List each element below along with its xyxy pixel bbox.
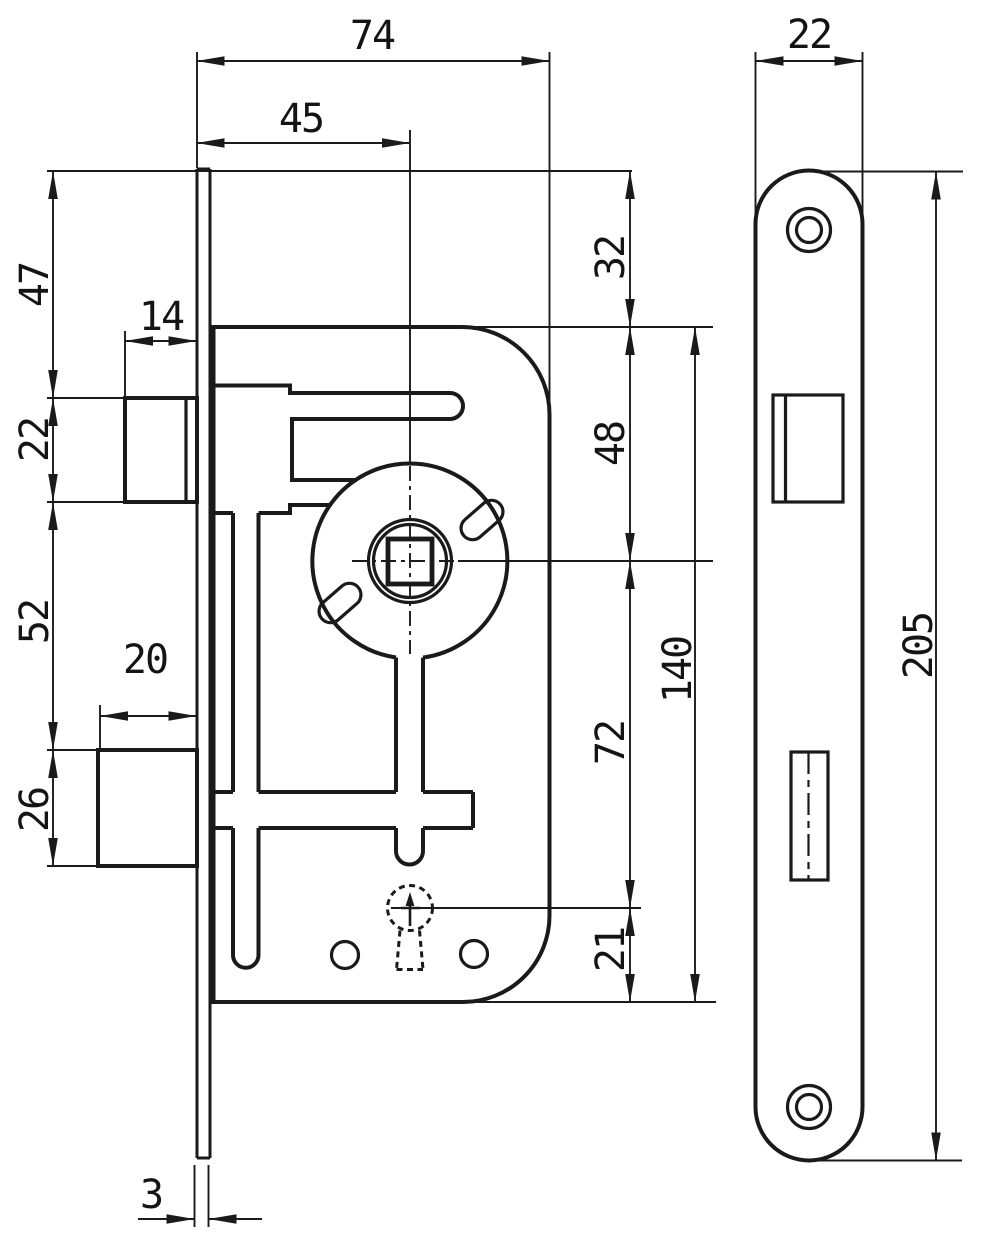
faceplate-outline xyxy=(756,171,863,1161)
dim-label-22-latch: 22 xyxy=(12,418,58,462)
dim-label-20: 20 xyxy=(123,637,167,683)
front-view-lock-body xyxy=(98,130,713,1158)
dim-label-52: 52 xyxy=(12,600,58,644)
drawing-sheet: 74 45 22 14 20 3 47 22 52 26 32 48 72 21… xyxy=(0,0,1000,1251)
follower-stop-upper xyxy=(456,496,507,545)
dim-label-32: 32 xyxy=(588,236,634,280)
dead-bolt xyxy=(98,750,197,866)
faceplate-bolt-opening xyxy=(791,752,828,880)
dim-label-45: 45 xyxy=(279,96,323,142)
keyhole-arrow-icon xyxy=(406,892,415,906)
dimension-lines xyxy=(53,61,936,1219)
dim-label-140: 140 xyxy=(655,637,701,703)
lock-case-outline xyxy=(214,327,550,1002)
faceplate-screw-hole-bottom xyxy=(788,1086,831,1129)
latch-bolt xyxy=(125,398,197,502)
dim-label-22-faceplate: 22 xyxy=(787,12,831,58)
extension-lines xyxy=(47,52,963,1227)
dim-label-26: 26 xyxy=(12,788,58,832)
follower-stop-lower xyxy=(314,579,365,628)
dim-label-47: 47 xyxy=(12,263,58,307)
dim-label-3: 3 xyxy=(140,1172,162,1218)
dimension-labels: 74 45 22 14 20 3 47 22 52 26 32 48 72 21… xyxy=(12,12,942,1218)
mortise-lock-technical-drawing: 74 45 22 14 20 3 47 22 52 26 32 48 72 21… xyxy=(0,0,1000,1251)
faceplate-screw-hole-top xyxy=(788,209,831,252)
keyhole xyxy=(388,886,433,970)
dim-label-48: 48 xyxy=(588,422,634,466)
faceplate-latch-opening xyxy=(773,395,843,502)
dim-label-205: 205 xyxy=(896,613,942,679)
dim-label-72: 72 xyxy=(588,721,634,765)
dim-label-14: 14 xyxy=(139,294,184,340)
faceplate-edge-strip xyxy=(197,169,210,1158)
screw-hole-right xyxy=(461,941,488,968)
side-view-faceplate xyxy=(756,171,863,1161)
dim-label-21: 21 xyxy=(588,928,634,972)
follower-tail-slot xyxy=(396,658,423,865)
dim-label-74: 74 xyxy=(350,13,395,59)
screw-hole-left xyxy=(332,942,359,969)
